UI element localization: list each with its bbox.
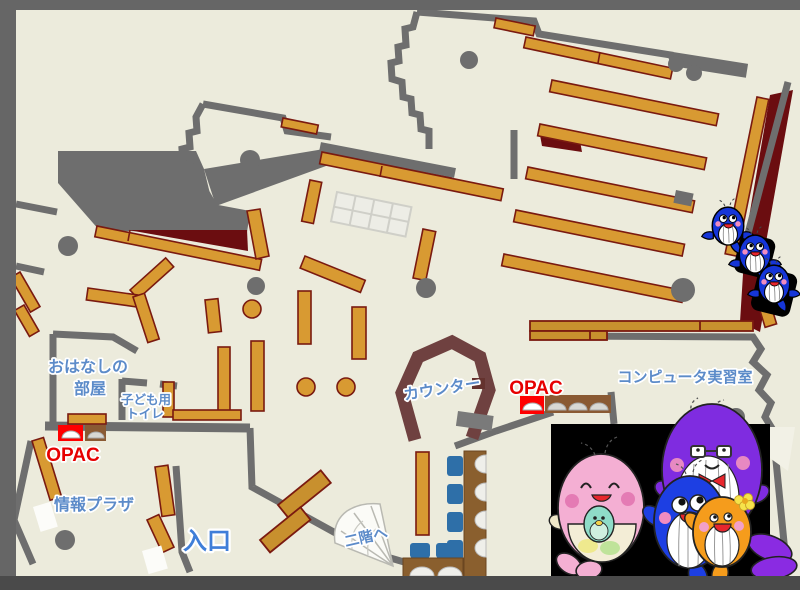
label-kids-toilet: トイレ	[126, 407, 164, 421]
pillar	[460, 51, 478, 69]
label-story-room: 部屋	[74, 379, 106, 398]
bookshelf	[530, 321, 753, 331]
bookshelf	[416, 452, 429, 535]
round-table	[337, 378, 355, 396]
label-story-room: おはなしの	[48, 358, 128, 376]
round-table	[297, 378, 315, 396]
pillar	[55, 530, 75, 550]
bookshelf	[218, 347, 230, 412]
pillar	[416, 278, 436, 298]
library-floor-map: おはなしの 部屋 子ども用 トイレ OPAC 情報プラザ 入口 二階へ カウンタ…	[0, 0, 800, 590]
chair	[410, 543, 430, 558]
chair	[447, 512, 463, 532]
chair	[436, 543, 456, 558]
label-entrance: 入口	[183, 528, 231, 555]
label-opac-center: OPAC	[509, 378, 563, 399]
pillar	[668, 56, 684, 72]
bookshelf	[530, 331, 607, 340]
frame-top	[0, 0, 800, 10]
pillar	[58, 236, 78, 256]
chair	[447, 484, 463, 504]
pillar	[686, 65, 702, 81]
label-info-plaza: 情報プラザ	[54, 495, 134, 514]
bookshelf	[298, 291, 311, 344]
wall	[611, 392, 614, 424]
round-table	[243, 300, 261, 318]
pillar	[671, 278, 695, 302]
bookshelf	[352, 307, 366, 359]
frame-bottom	[0, 576, 800, 590]
bookshelf	[251, 341, 264, 411]
pillar	[240, 150, 260, 170]
label-kids-toilet: 子ども用	[121, 393, 171, 407]
bookshelf	[68, 414, 106, 424]
teal-baby-whale-mascot	[584, 506, 614, 542]
opac-station-left	[58, 425, 106, 441]
frame-left	[0, 0, 16, 590]
bookshelf	[173, 410, 241, 420]
label-opac-left: OPAC	[46, 445, 100, 466]
mascot-panel	[547, 398, 798, 590]
label-computer-room: コンピュータ実習室	[617, 368, 752, 386]
floor-map-canvas: おはなしの 部屋 子ども用 トイレ OPAC 情報プラザ 入口 二階へ カウンタ…	[0, 0, 800, 590]
pillar	[247, 277, 265, 295]
bookshelf	[205, 299, 221, 333]
chair	[447, 456, 463, 476]
